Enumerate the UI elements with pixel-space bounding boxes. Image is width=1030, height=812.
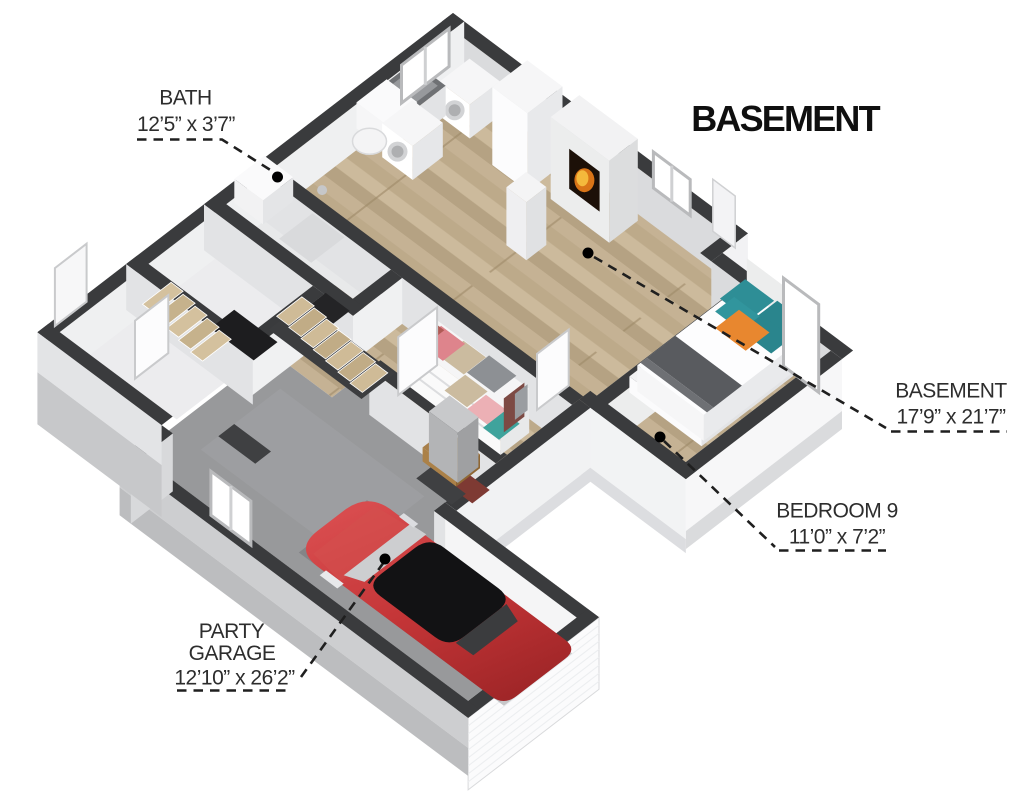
- svg-text:12’5” x 3’7”: 12’5” x 3’7”: [137, 113, 235, 136]
- svg-text:PARTY: PARTY: [199, 620, 265, 643]
- svg-text:BEDROOM 9: BEDROOM 9: [776, 500, 898, 523]
- svg-text:BATH: BATH: [159, 87, 211, 110]
- svg-text:17’9” x 21’7”: 17’9” x 21’7”: [896, 406, 1006, 429]
- svg-text:BASEMENT: BASEMENT: [895, 380, 1007, 403]
- svg-text:11’0” x 7’2”: 11’0” x 7’2”: [789, 526, 886, 549]
- svg-text:BASEMENT: BASEMENT: [691, 98, 880, 139]
- svg-text:12’10” x 26’2”: 12’10” x 26’2”: [174, 667, 295, 690]
- svg-text:GARAGE: GARAGE: [189, 642, 276, 665]
